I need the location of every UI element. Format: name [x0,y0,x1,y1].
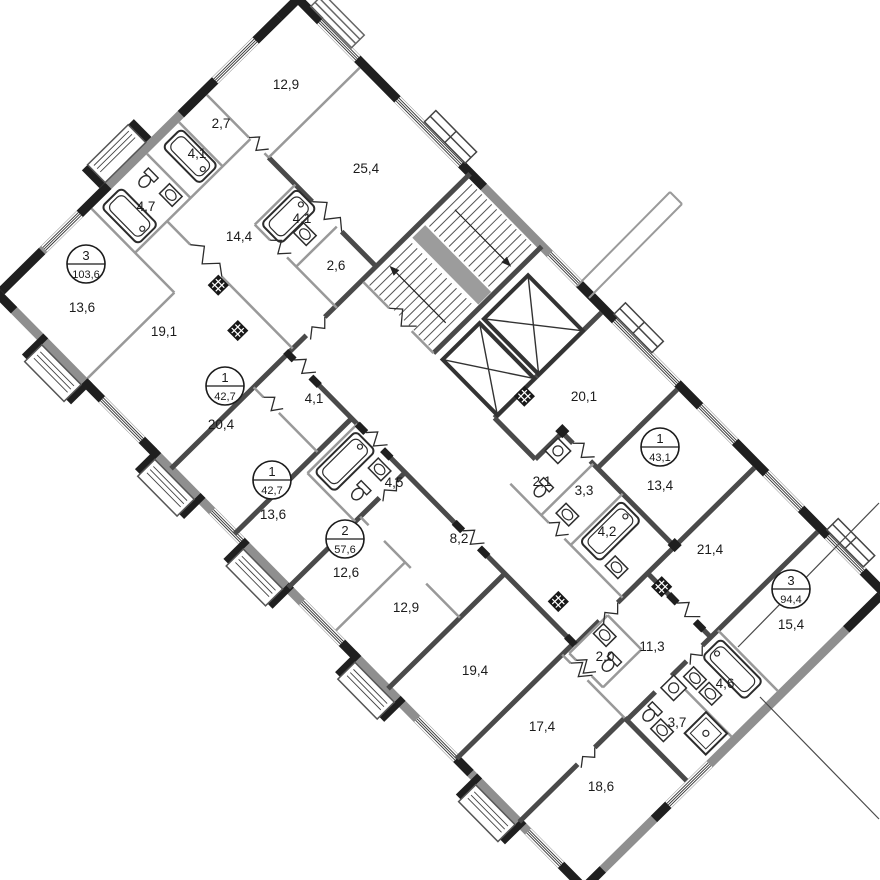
balcony-edge-line [577,192,670,286]
apartment-badge: 257,6 [326,520,364,558]
elevator-shafts [443,275,583,415]
apartment-area: 42,7 [214,391,235,403]
apartment-rooms-count: 1 [656,431,663,446]
room-area-label: 4,6 [716,676,735,691]
apartment-rooms-count: 3 [82,248,89,263]
apartment-area: 94,4 [780,594,801,606]
balcony-edge-line [589,204,682,298]
room-area-label: 13,6 [260,507,286,522]
room-area-label: 11,3 [639,639,664,654]
leader-line [760,697,879,819]
apartment-badge: 394,4 [772,570,810,608]
apartment-area: 57,6 [334,544,355,556]
floor-plan-svg: 3103,6142,7142,7257,6143,1394,4 12,92,74… [0,0,880,880]
room-area-label: 4,5 [385,475,404,490]
apartment-area: 43,1 [649,452,670,464]
apartment-rooms-count: 1 [268,464,275,479]
room-area-label: 2,0 [596,649,615,664]
room-area-label: 12,9 [393,600,419,615]
room-area-label: 19,4 [462,663,489,678]
apartment-rooms-count: 1 [221,370,228,385]
room-area-label: 21,4 [697,542,724,557]
apartment-area: 42,7 [261,485,282,497]
room-area-label: 20,4 [208,417,235,432]
room-area-label: 13,6 [69,300,95,315]
room-area-label: 8,2 [450,531,469,546]
room-area-label: 14,4 [226,229,253,244]
balcony-edge-line [670,192,682,204]
room-area-label: 4,1 [293,211,312,226]
leader-line [738,503,879,647]
room-area-label: 3,3 [575,483,594,498]
room-area-label: 12,9 [273,77,299,92]
apartment-badge: 142,7 [253,461,291,499]
room-area-label: 4,1 [305,391,324,406]
room-area-label: 4,1 [188,146,207,161]
room-area-label: 3,7 [668,715,687,730]
room-area-label: 19,1 [151,324,177,339]
room-area-label: 4,2 [598,524,617,539]
load-bearing-walls [64,65,880,880]
room-area-label: 20,1 [571,389,597,404]
apartment-rooms-count: 3 [787,573,794,588]
room-area-label: 4,7 [137,199,156,214]
room-area-label: 12,6 [333,565,359,580]
room-area-label: 25,4 [353,161,380,176]
room-area-label: 15,4 [778,617,805,632]
room-area-label: 2,1 [533,474,552,489]
room-area-label: 13,4 [647,478,674,493]
room-area-label: 2,6 [327,258,346,273]
apartment-area: 103,6 [72,269,100,281]
room-area-label: 18,6 [588,779,614,794]
apartment-badge: 3103,6 [67,245,105,283]
building-structure [0,0,880,880]
apartment-badge: 142,7 [206,367,244,405]
apartment-badge: 143,1 [641,428,679,466]
apartment-rooms-count: 2 [341,523,348,538]
room-area-label: 17,4 [529,719,556,734]
floor-plan-canvas: 3103,6142,7142,7257,6143,1394,4 12,92,74… [0,0,880,880]
room-area-label: 2,7 [212,116,231,131]
